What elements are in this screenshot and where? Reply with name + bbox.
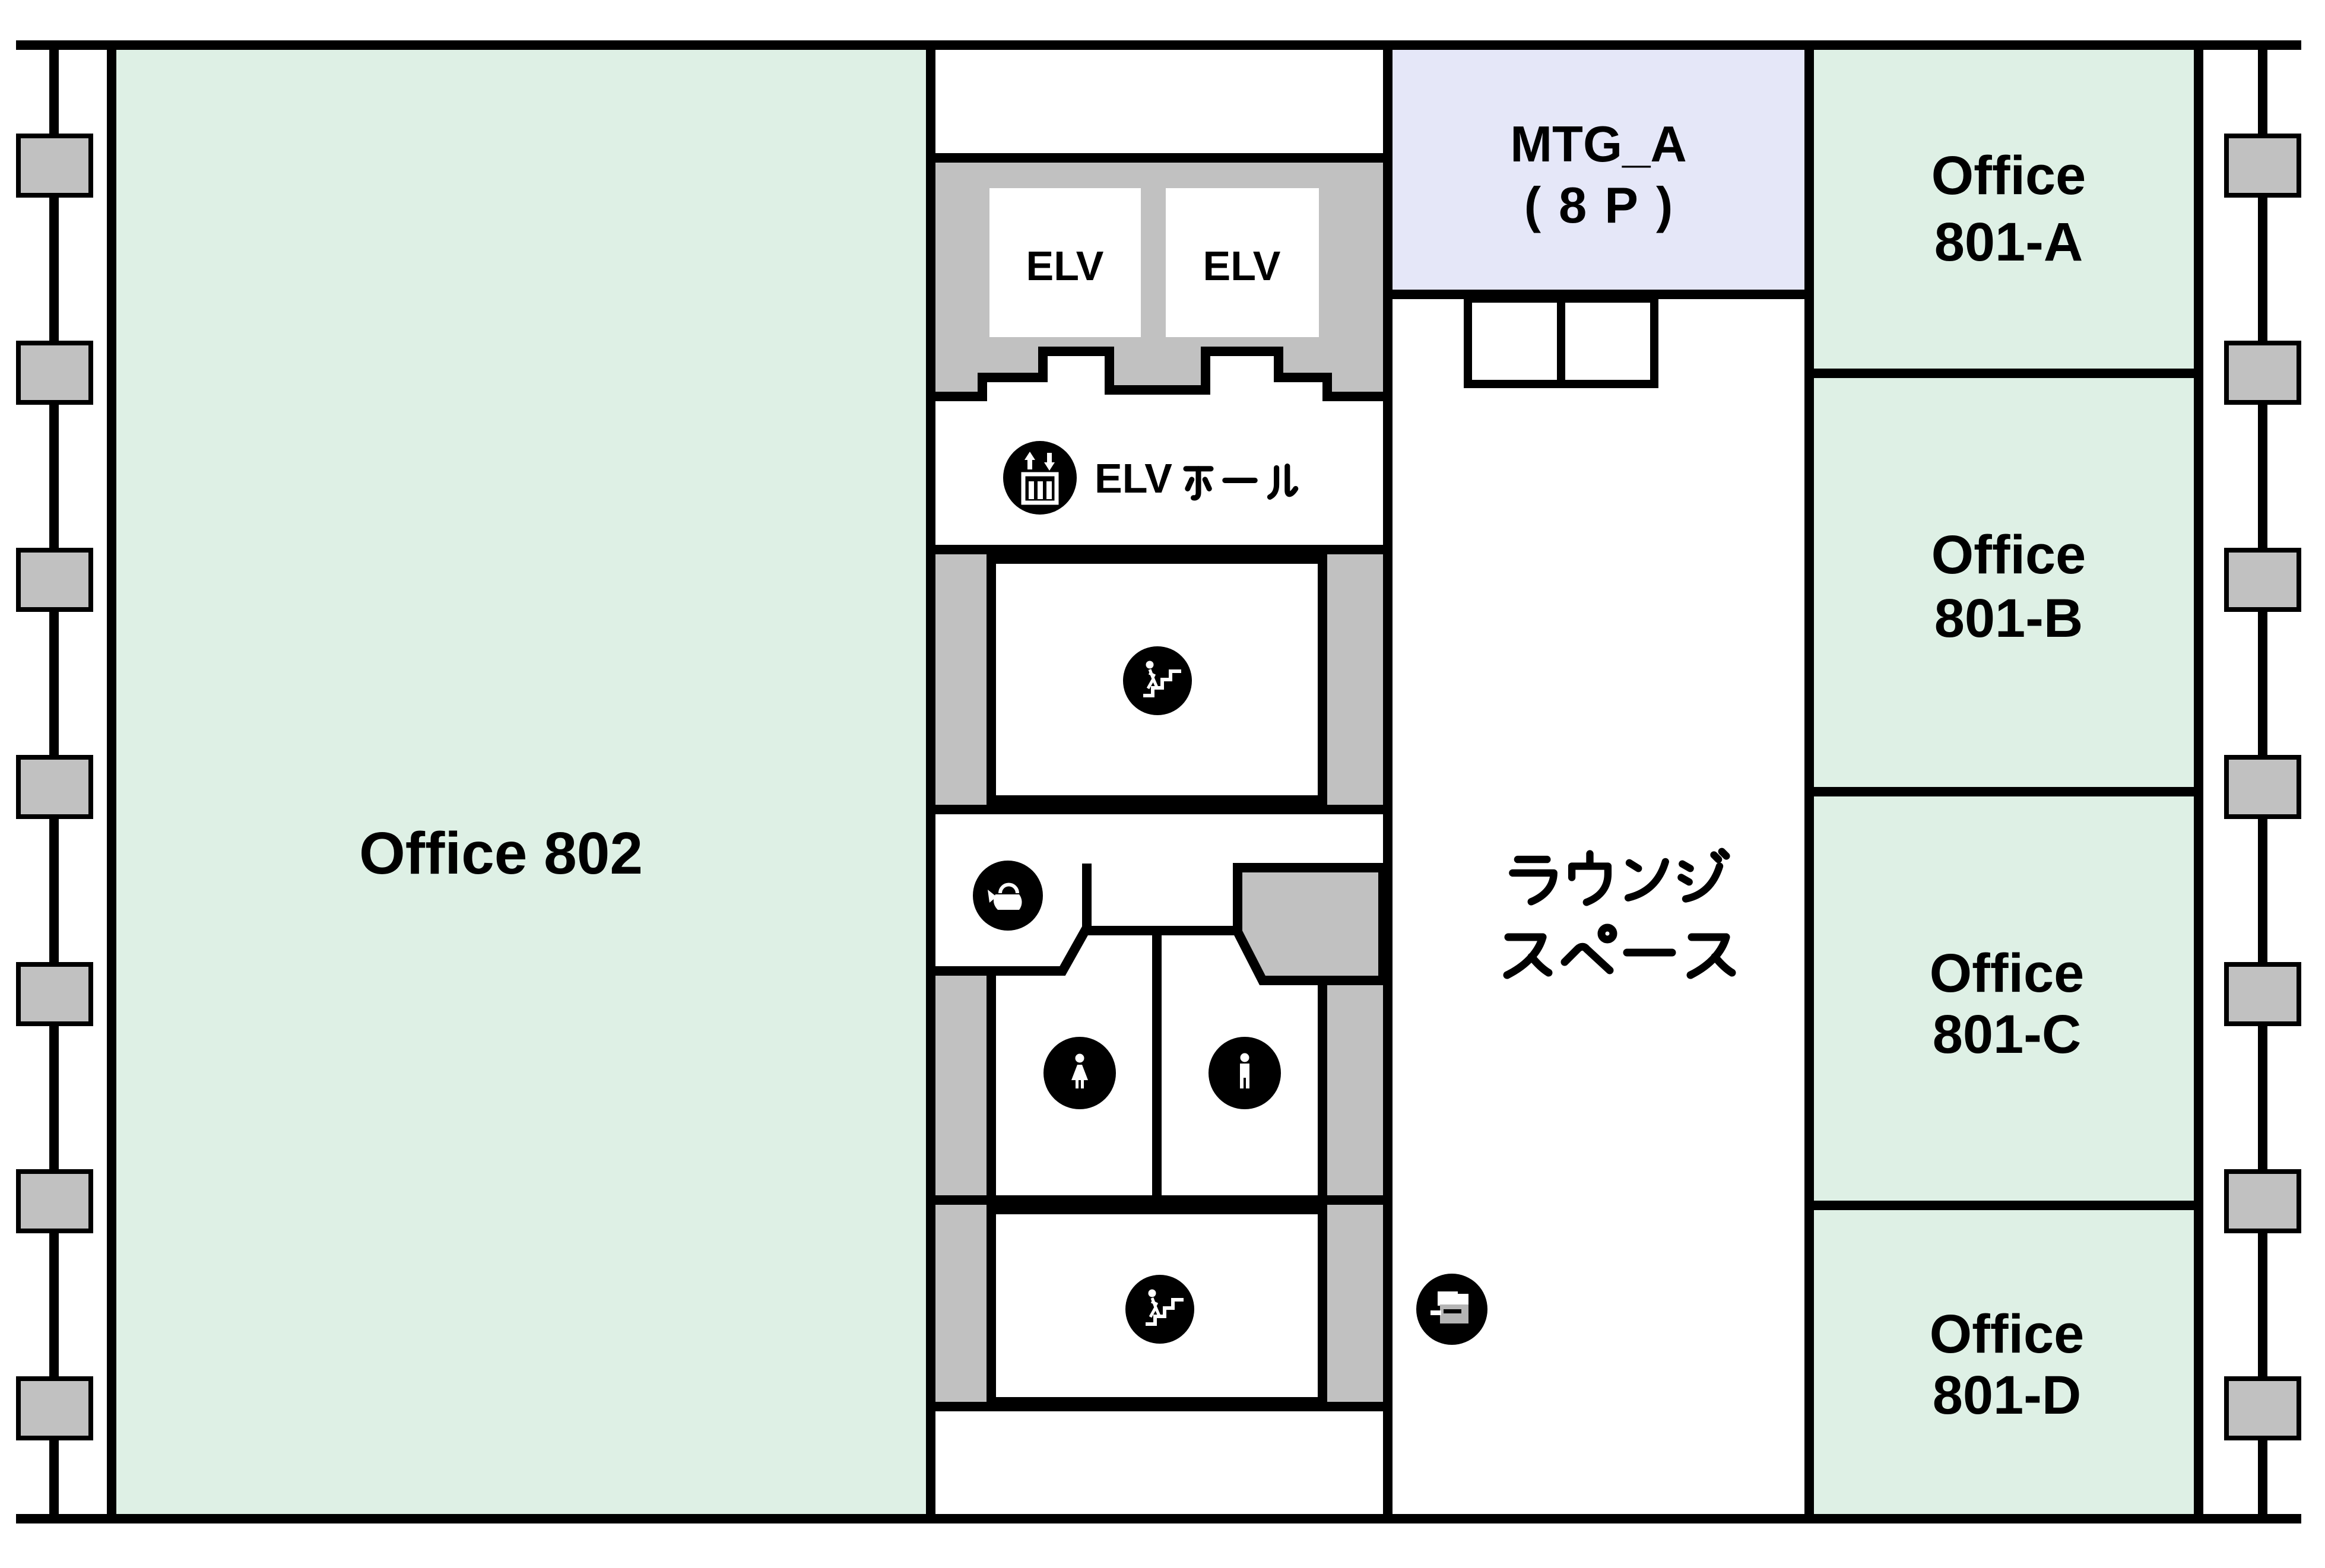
svg-text:ELV: ELV <box>1095 455 1172 501</box>
svg-text:Office: Office <box>1931 145 2086 206</box>
svg-text:ELV: ELV <box>1026 243 1104 289</box>
svg-text:801-D: 801-D <box>1933 1365 2082 1426</box>
svg-text:(8P): (8P) <box>1524 177 1691 234</box>
svg-text:MTG_A: MTG_A <box>1510 116 1687 173</box>
svg-text:801-B: 801-B <box>1934 588 2083 649</box>
svg-text:Office: Office <box>1930 1304 2085 1364</box>
svg-text:ELV: ELV <box>1203 243 1281 289</box>
svg-text:Office: Office <box>1930 943 2085 1004</box>
svg-text:Office 802: Office 802 <box>359 820 643 887</box>
svg-text:801-A: 801-A <box>1934 212 2083 272</box>
svg-text:Office: Office <box>1931 525 2086 585</box>
svg-text:801-C: 801-C <box>1933 1004 2082 1065</box>
